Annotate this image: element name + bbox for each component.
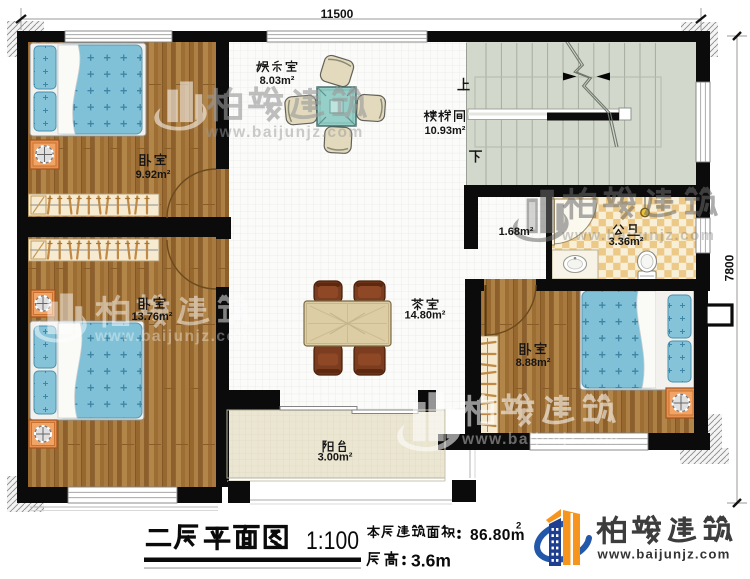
svg-text:11500: 11500 (321, 7, 354, 21)
svg-text:1:100: 1:100 (306, 527, 359, 555)
svg-text:1.68m²: 1.68m² (499, 226, 534, 238)
svg-text:3.36m²: 3.36m² (609, 236, 644, 248)
svg-text:www.baijunjz.com: www.baijunjz.com (94, 328, 253, 345)
svg-text:10.93m²: 10.93m² (425, 125, 466, 137)
svg-text:8.03m²: 8.03m² (260, 75, 295, 87)
svg-text:www.baijunjz.com: www.baijunjz.com (596, 547, 730, 562)
svg-text:9.92m²: 9.92m² (136, 169, 171, 181)
svg-text:3.00m²: 3.00m² (318, 452, 353, 464)
svg-text:www.baijunjz.com: www.baijunjz.com (205, 124, 364, 141)
svg-text:7800: 7800 (723, 254, 737, 281)
svg-text:2: 2 (516, 521, 521, 532)
svg-text:3.6m: 3.6m (411, 551, 451, 571)
svg-text:8.88m²: 8.88m² (516, 357, 551, 369)
svg-text:www.baijunjz.com: www.baijunjz.com (461, 431, 620, 448)
svg-text:14.80m²: 14.80m² (405, 310, 446, 322)
svg-text:13.76m²: 13.76m² (132, 311, 173, 323)
